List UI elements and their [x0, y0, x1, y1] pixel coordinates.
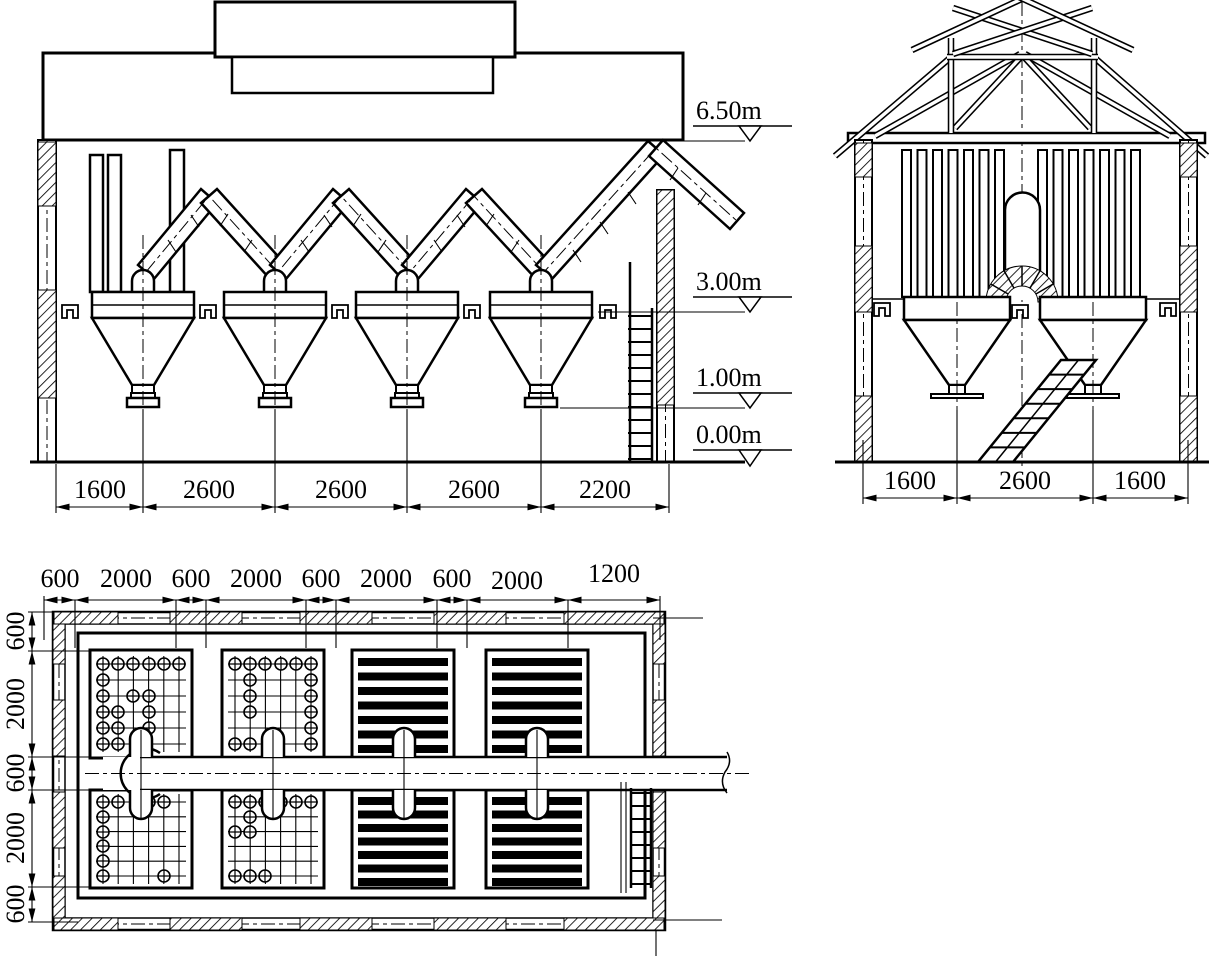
engineering-drawing-page: 1600 2600 2600 2600 2200 6.50m 3.00m 1.0…	[0, 0, 1209, 962]
plan-dim-label-left: 600	[3, 885, 29, 924]
side-section-view	[835, 0, 1209, 504]
level-label: 0.00m	[696, 422, 762, 448]
side-dim-label: 1600	[1114, 468, 1166, 494]
plan-dim-label: 600	[302, 566, 341, 592]
front-dim-label: 2600	[315, 477, 367, 503]
plan-dim-label: 600	[433, 566, 472, 592]
side-dim-label: 1600	[884, 468, 936, 494]
plan-dim-label-left: 600	[3, 754, 29, 793]
plan-dim-label: 1200	[588, 561, 640, 587]
level-marks	[693, 126, 792, 466]
front-dim-label: 2600	[448, 477, 500, 503]
penthouse-upper	[215, 2, 515, 57]
plan-dim-label-left: 2000	[3, 678, 29, 730]
hoppers-front	[92, 235, 592, 458]
front-dim-label: 1600	[74, 477, 126, 503]
front-dim-label: 2600	[183, 477, 235, 503]
plan-dim-label: 2000	[230, 566, 282, 592]
right-wall-column	[657, 190, 674, 462]
access-ladder	[628, 262, 653, 462]
plan-dim-label: 600	[172, 566, 211, 592]
plan-dim-label-left: 600	[3, 612, 29, 651]
plan-dim-label: 2000	[100, 566, 152, 592]
plan-view	[28, 596, 750, 956]
level-label: 1.00m	[696, 365, 762, 391]
level-label: 3.00m	[696, 269, 762, 295]
plan-dim-label: 2000	[491, 568, 543, 594]
side-dim-label: 2600	[999, 468, 1051, 494]
front-elevation-view	[30, 2, 792, 513]
front-dim-label: 2200	[579, 477, 631, 503]
penthouse-lower	[232, 57, 493, 93]
plan-dim-label: 2000	[360, 566, 412, 592]
zigzag-chutes	[138, 140, 744, 279]
bottom-chord	[848, 133, 1205, 143]
plan-dim-label: 600	[41, 566, 80, 592]
left-wall	[38, 140, 56, 462]
plan-dim-label-left: 2000	[3, 812, 29, 864]
stair	[978, 360, 1096, 462]
level-label: 6.50m	[696, 98, 762, 124]
